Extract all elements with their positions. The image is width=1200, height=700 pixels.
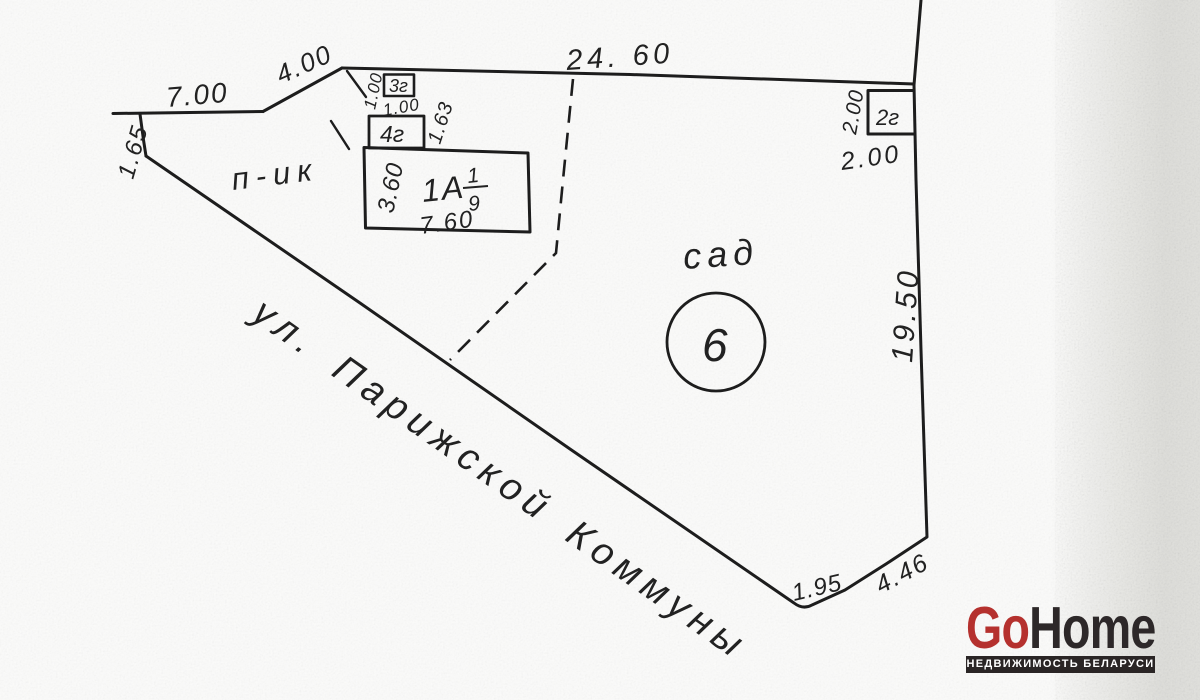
svg-text:3г: 3г <box>389 76 408 96</box>
svg-text:2г: 2г <box>875 105 899 130</box>
svg-text:6: 6 <box>702 319 728 371</box>
svg-text:1А: 1А <box>420 169 467 209</box>
svg-text:1: 1 <box>466 164 480 188</box>
svg-text:19.50: 19.50 <box>886 266 926 363</box>
svg-text:7.00: 7.00 <box>165 77 230 113</box>
svg-text:4г: 4г <box>380 121 404 147</box>
svg-text:сад: сад <box>682 231 761 277</box>
